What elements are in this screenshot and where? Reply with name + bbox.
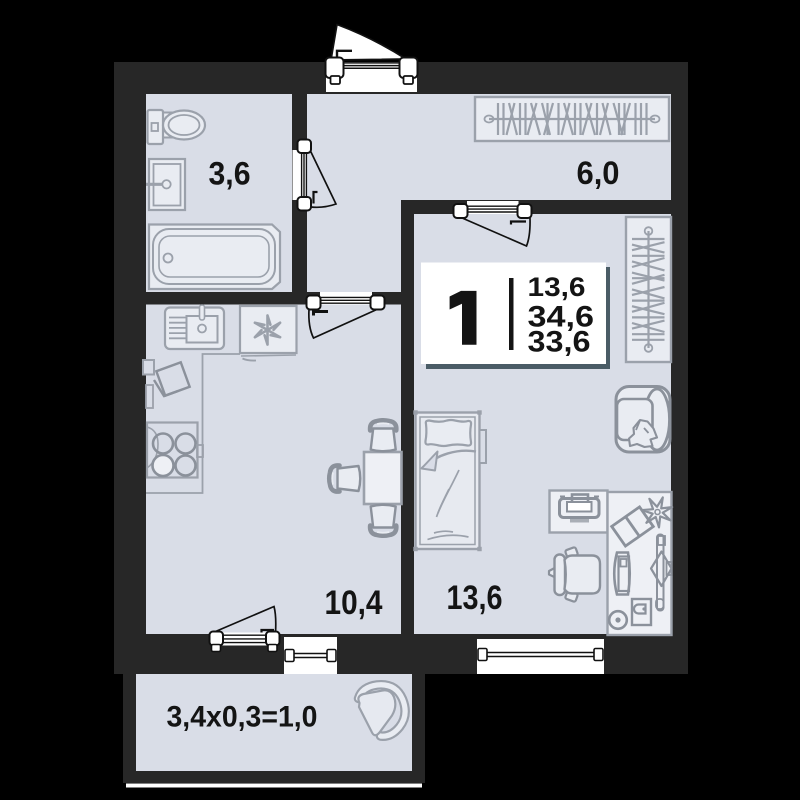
svg-text:6,0: 6,0 [577,155,620,191]
svg-text:3,6: 3,6 [209,156,251,192]
svg-text:3,4х0,3=1,0: 3,4х0,3=1,0 [167,701,318,734]
svg-text:33,6: 33,6 [528,326,591,359]
svg-text:13,6: 13,6 [447,579,503,617]
svg-text:10,4: 10,4 [325,584,383,622]
svg-text:13,6: 13,6 [528,272,586,302]
